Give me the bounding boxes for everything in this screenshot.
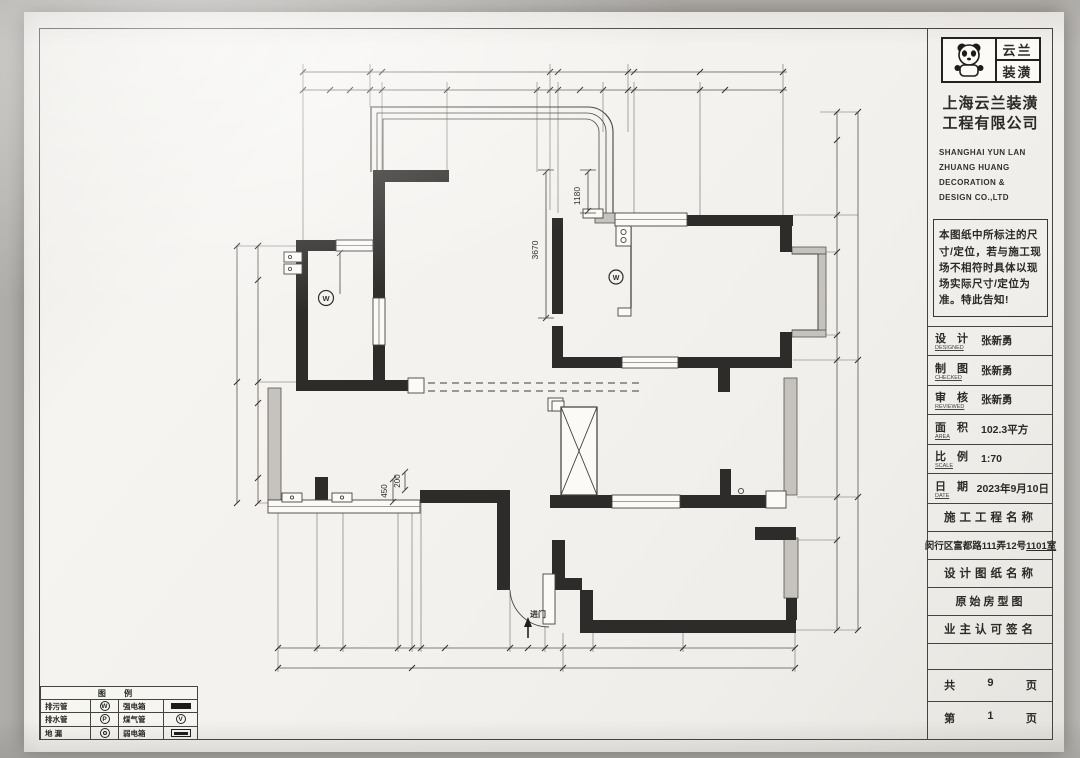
striped-rect-symbol [171,729,191,737]
field-drawn: 制 图CHECKED 张新勇 [928,356,1053,386]
sheet-border [39,28,1053,740]
photo-background: 进门 1180 3670 450 200 W W [0,0,1080,758]
project-address: 闵行区富都路111弄12号1101室 [928,532,1053,560]
drawing-name: 原始房型图 [928,588,1053,616]
field-date: 日 期DATE 2023年9月10日 [928,474,1053,504]
drawing-name-header: 设计图纸名称 [928,560,1053,588]
project-name-header: 施工工程名称 [928,504,1053,532]
field-scale: 比 例SCALE 1:70 [928,445,1053,475]
dimension-notice: 本图纸中所标注的尺寸/定位，若与施工现场不相符时具体以现场实际尺寸/定位为准。特… [933,219,1048,316]
title-block: 云兰 装潢 上海云兰装潢 工程有限公司 SHANGHAI YUN LAN ZHU… [927,28,1053,740]
p-circle-symbol: P [100,714,110,724]
company-name-cn: 上海云兰装潢 工程有限公司 [928,94,1053,135]
field-designed: 设 计DESIGNED 张新勇 [928,327,1053,357]
panda-icon [943,39,997,81]
legend-row-1: 排污管 W 强电箱 [41,700,197,713]
company-name-en: SHANGHAI YUN LAN ZHUANG HUANG DECORATION… [928,145,1053,206]
legend-title: 图 例 [41,687,197,700]
field-area: 面 积AREA 102.3平方 [928,415,1053,445]
owner-signature-space [928,644,1053,670]
field-reviewed: 审 核REVIEWED 张新勇 [928,386,1053,416]
w-circle-symbol: W [100,701,110,711]
total-pages: 共 9 页 [928,670,1053,702]
legend-row-2: 排水管 P 煤气管 V [41,713,197,726]
brand-name-bottom: 装潢 [997,59,1039,81]
company-logo: 云兰 装潢 [928,28,1053,86]
owner-signature-header: 业主认可签名 [928,616,1053,644]
brand-name-top: 云兰 [997,39,1039,59]
solid-rect-symbol [171,703,191,709]
current-page: 第 1 页 [928,702,1053,734]
v-circle-symbol: V [176,714,186,724]
legend-table: 图 例 排污管 W 强电箱 排水管 P 煤气管 V 地 漏 弱电箱 [40,686,198,740]
field-rows: 设 计DESIGNED 张新勇 制 图CHECKED 张新勇 审 核REVIEW… [928,326,1053,504]
double-circle-symbol [100,728,110,738]
legend-row-3: 地 漏 弱电箱 [41,727,197,740]
